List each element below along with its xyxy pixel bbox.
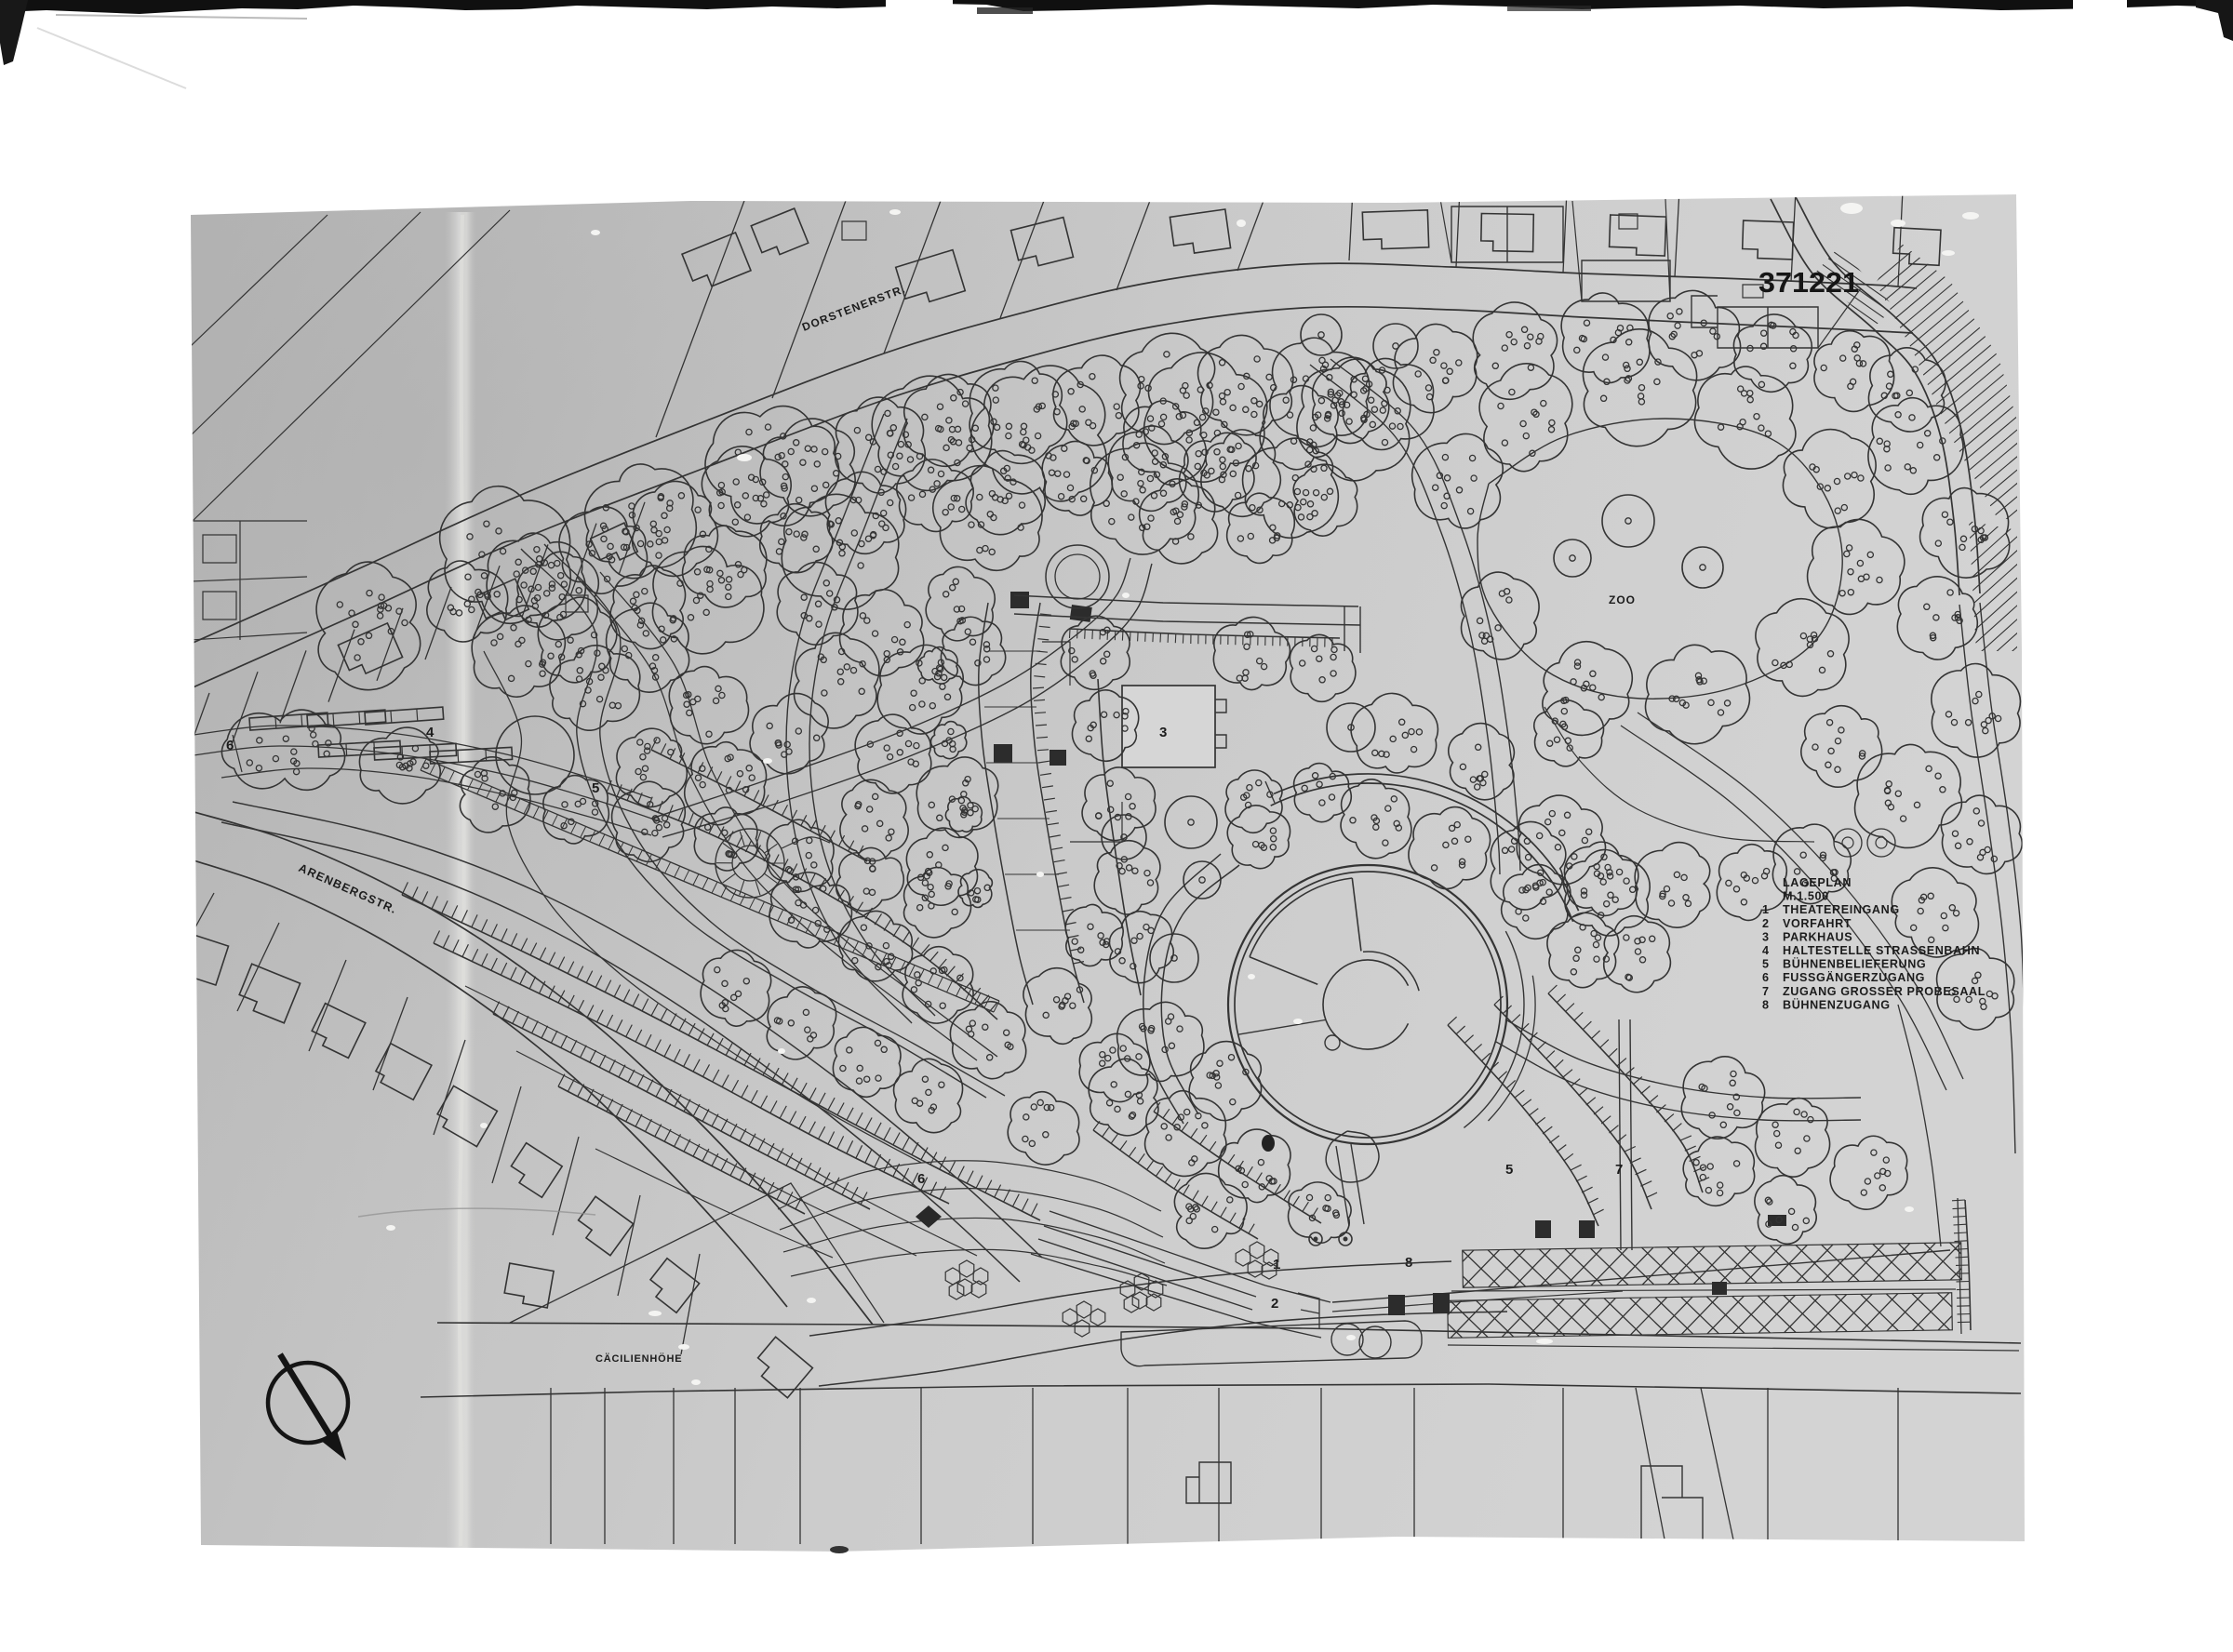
svg-text:THEATEREINGANG: THEATEREINGANG xyxy=(1783,903,1900,916)
svg-text:VORFAHRT: VORFAHRT xyxy=(1783,917,1852,930)
svg-text:PARKHAUS: PARKHAUS xyxy=(1783,930,1852,943)
svg-text:5: 5 xyxy=(1505,1162,1513,1178)
svg-text:ZUGANG GROSSER PROBESAAL: ZUGANG GROSSER PROBESAAL xyxy=(1783,985,1986,998)
svg-text:6: 6 xyxy=(1762,971,1770,984)
svg-text:CÄCILIENHÖHE: CÄCILIENHÖHE xyxy=(595,1352,682,1365)
svg-text:FUSSGÄNGERZUGANG: FUSSGÄNGERZUGANG xyxy=(1783,970,1925,984)
svg-text:6: 6 xyxy=(917,1171,925,1187)
svg-text:HALTESTELLE STRASSENBAHN: HALTESTELLE STRASSENBAHN xyxy=(1783,944,1980,957)
svg-text:4: 4 xyxy=(1762,944,1770,957)
svg-text:3: 3 xyxy=(1159,725,1167,740)
svg-text:2: 2 xyxy=(1762,917,1770,930)
svg-text:5: 5 xyxy=(1762,958,1770,971)
svg-text:BÜHNENBELIEFERUNG: BÜHNENBELIEFERUNG xyxy=(1783,957,1926,971)
svg-text:ZOO: ZOO xyxy=(1609,593,1636,606)
svg-text:3: 3 xyxy=(1762,930,1770,943)
svg-text:7: 7 xyxy=(1615,1162,1623,1178)
svg-text:LAGEPLAN: LAGEPLAN xyxy=(1783,876,1852,889)
svg-text:1: 1 xyxy=(1762,903,1770,916)
svg-text:7: 7 xyxy=(1762,985,1770,998)
svg-text:M.1.500: M.1.500 xyxy=(1783,890,1829,903)
svg-text:8: 8 xyxy=(1762,998,1770,1011)
svg-text:BÜHNENZUGANG: BÜHNENZUGANG xyxy=(1783,997,1891,1011)
svg-text:371221: 371221 xyxy=(1758,266,1859,299)
svg-text:2: 2 xyxy=(1271,1296,1278,1312)
